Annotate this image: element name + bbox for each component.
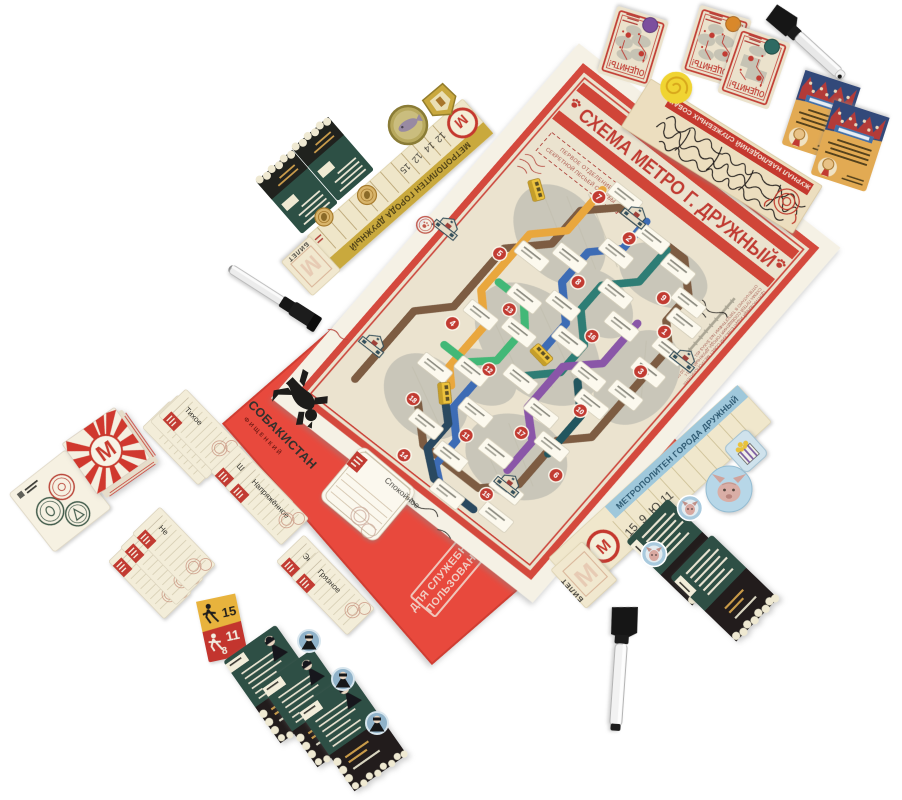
svg-text:15: 15 (220, 603, 237, 621)
